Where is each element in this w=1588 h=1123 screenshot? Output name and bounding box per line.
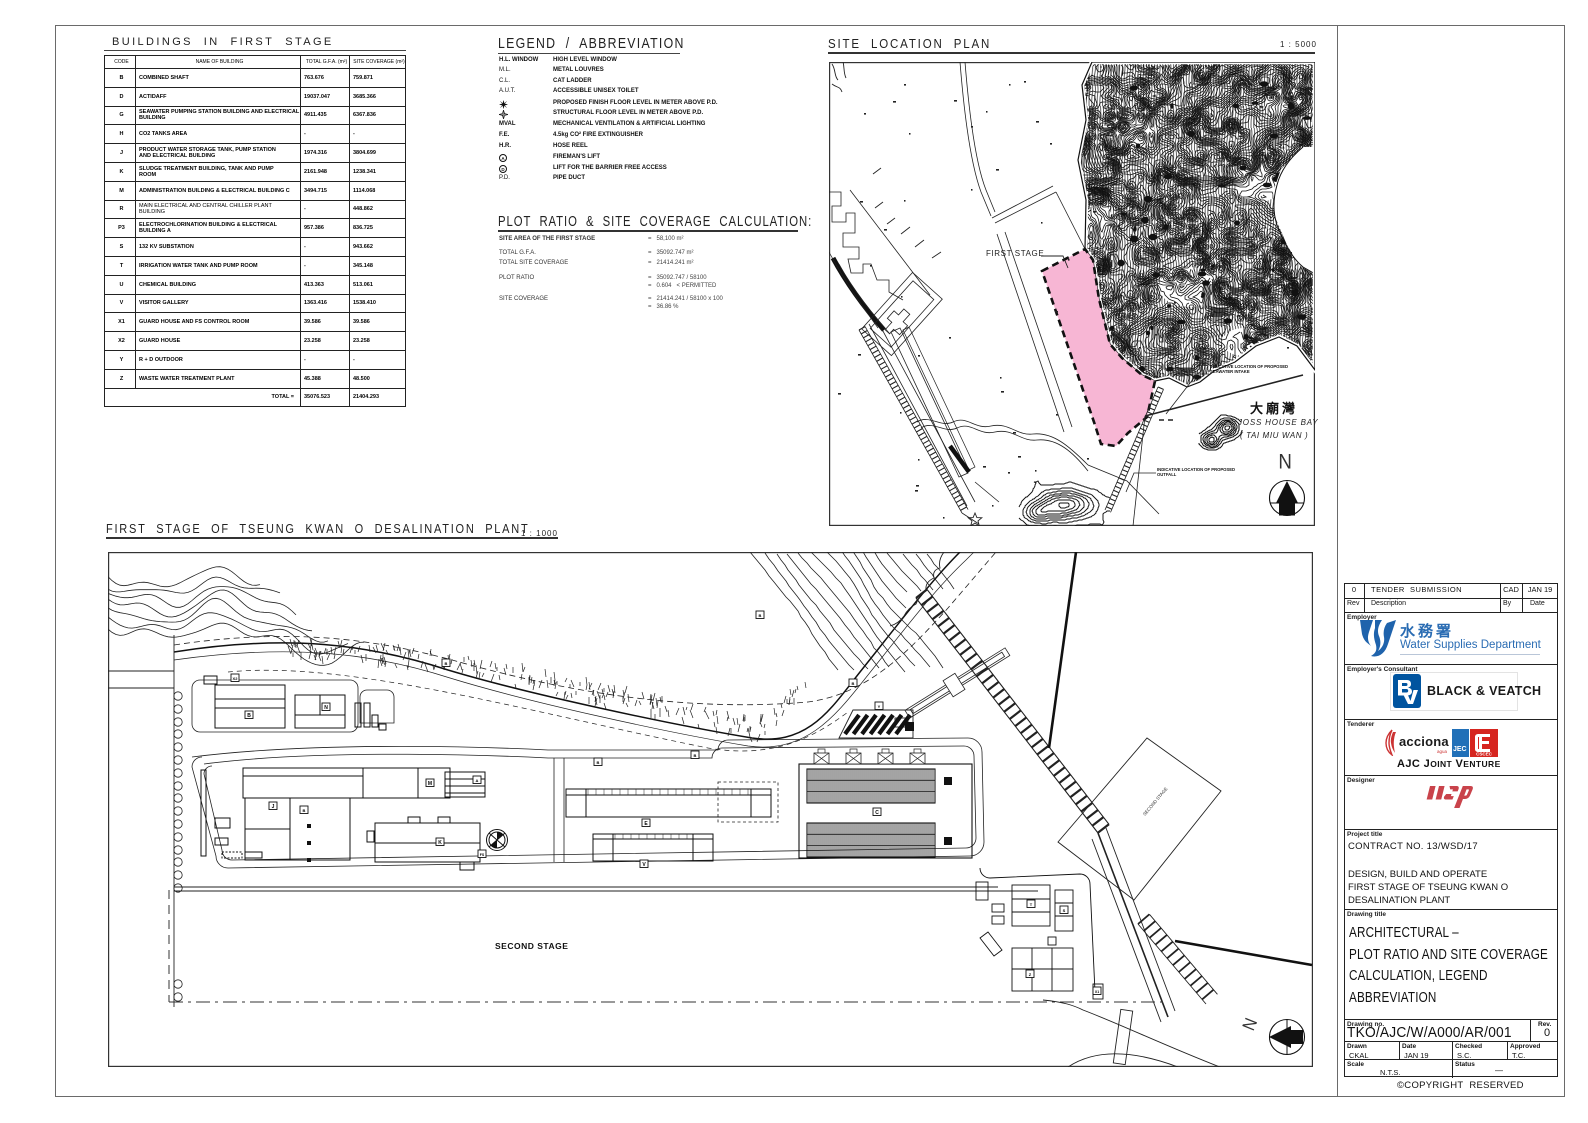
svg-text:B: B <box>445 661 448 666</box>
svg-text:B: B <box>694 753 697 758</box>
svg-text:C: C <box>875 810 879 816</box>
svg-text:S: S <box>1063 908 1066 913</box>
svg-text:J: J <box>272 804 275 810</box>
svg-text:X1: X1 <box>1095 990 1099 994</box>
svg-text:A: A <box>476 778 479 783</box>
svg-text:B: B <box>852 681 855 686</box>
svg-text:FS: FS <box>480 853 485 857</box>
svg-text:N: N <box>324 705 328 711</box>
svg-text:Y: Y <box>878 704 881 709</box>
svg-text:SECOND STAGE: SECOND STAGE <box>1142 786 1169 816</box>
svg-text:B: B <box>247 713 251 719</box>
svg-text:B: B <box>759 613 762 618</box>
svg-text:B: B <box>597 760 600 765</box>
svg-text:X2: X2 <box>233 676 239 681</box>
svg-text:CSCEC: CSCEC <box>1476 752 1493 757</box>
svg-text:M: M <box>428 781 432 787</box>
svg-text:B: B <box>303 808 306 813</box>
svg-text:K: K <box>438 840 442 846</box>
